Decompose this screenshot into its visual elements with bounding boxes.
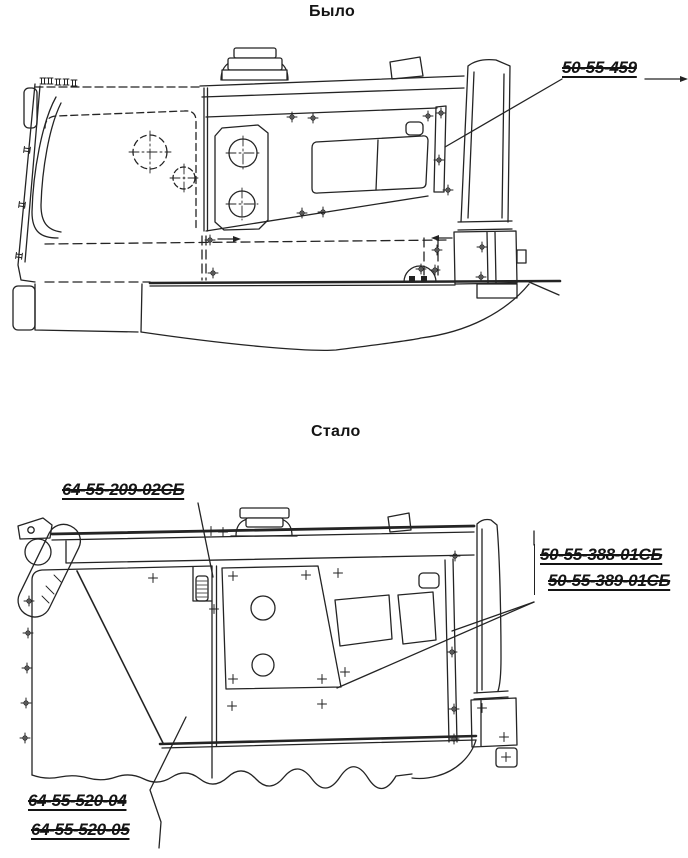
- access-plate: [215, 125, 268, 230]
- callout-part-number-50-55-459: 50-55-459: [562, 58, 637, 78]
- hidden-holes: [129, 131, 198, 192]
- fuel-filler-cap: [221, 48, 288, 80]
- grille-panel: [312, 122, 428, 193]
- torn-bottom-edge: [32, 767, 412, 789]
- arc-detail: [404, 266, 436, 282]
- hood-top-band: [35, 76, 464, 117]
- air-intake-box: [390, 57, 423, 79]
- door-panel: [32, 566, 217, 778]
- mounting-strip: [434, 106, 446, 192]
- hood-top-band: [52, 526, 474, 563]
- hood-diagonal: [206, 196, 428, 231]
- lower-band: [160, 736, 476, 748]
- wheel-arch: [412, 740, 476, 779]
- leader-line-50-55-388: [452, 602, 534, 631]
- pillar-bracket: [454, 231, 526, 298]
- grille-windows: [335, 573, 439, 646]
- windshield-pillar: [458, 60, 512, 230]
- hood-rear-edge: [204, 88, 208, 231]
- callout-part-number-50-55-389-01: 50-55-389-01СБ: [548, 571, 670, 591]
- access-panel: [222, 566, 341, 689]
- callout-part-number-64-55-520-04: 64-55-520-04: [28, 791, 126, 811]
- figure-before-title: Было: [309, 3, 355, 21]
- air-intake-box: [388, 513, 411, 532]
- callout-part-number-64-55-209-02: 64-55-209-02СБ: [62, 480, 184, 500]
- leader-line-50-55-389: [337, 602, 534, 688]
- leader-line-50-55-459: [445, 76, 688, 147]
- callout-part-number-50-55-388-01: 50-55-388-01СБ: [540, 545, 670, 565]
- callout-part-number-64-55-520-05: 64-55-520-05: [31, 820, 129, 840]
- drawing-page: Было Стало 50-55-459 64-55-209-02СБ 50-5…: [0, 0, 688, 858]
- callout-box-right: 50-55-388-01СБ 50-55-389-01СБ: [534, 544, 670, 595]
- front-edge: [18, 84, 61, 282]
- figure-after-title: Стало: [311, 423, 361, 441]
- before-drawing: [13, 48, 688, 350]
- latch-detail: [193, 567, 212, 601]
- hidden-lines: [45, 236, 448, 282]
- windshield-pillar: [474, 520, 508, 700]
- side-panel-dashed-outline: [45, 111, 196, 231]
